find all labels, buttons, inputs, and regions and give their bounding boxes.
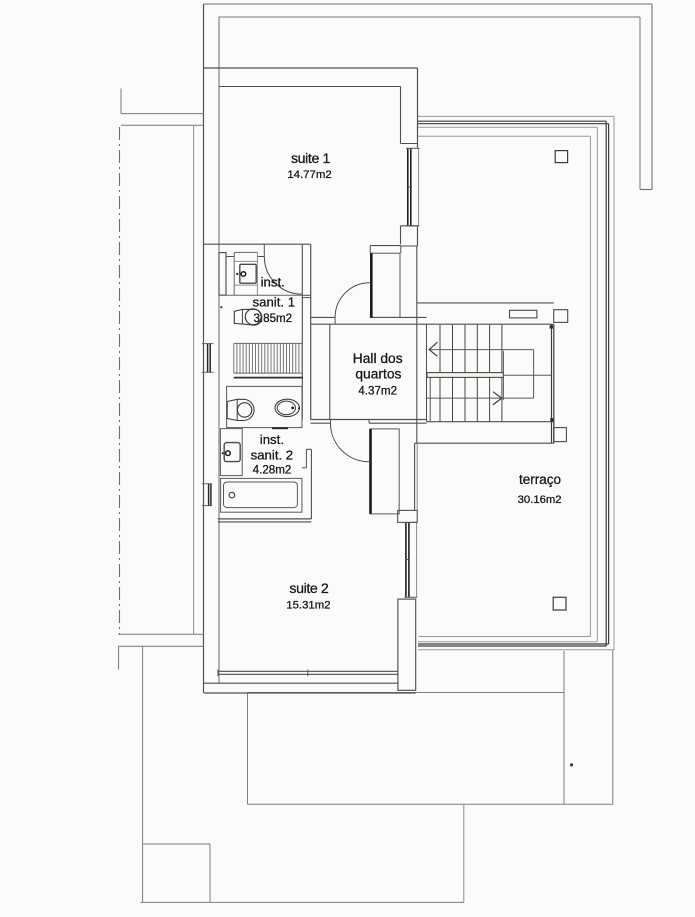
svg-text:14.77m2: 14.77m2: [287, 169, 331, 181]
svg-text:Hall dos: Hall dos: [353, 351, 403, 366]
svg-text:4.28m2: 4.28m2: [253, 464, 292, 477]
svg-text:quartos: quartos: [355, 366, 401, 381]
svg-text:4.37m2: 4.37m2: [358, 384, 397, 397]
svg-text:3.85m2: 3.85m2: [253, 312, 292, 325]
svg-text:suite 2: suite 2: [289, 581, 329, 597]
svg-text:30.16m2: 30.16m2: [518, 494, 562, 506]
svg-text:inst.: inst.: [261, 275, 285, 290]
svg-text:sanit. 1: sanit. 1: [253, 295, 296, 310]
svg-text:suite 1: suite 1: [291, 151, 331, 167]
svg-text:sanit. 2: sanit. 2: [251, 448, 294, 463]
svg-text:15.31m2: 15.31m2: [286, 600, 330, 612]
svg-text:terraço: terraço: [519, 472, 561, 487]
svg-text:inst.: inst.: [260, 432, 284, 447]
